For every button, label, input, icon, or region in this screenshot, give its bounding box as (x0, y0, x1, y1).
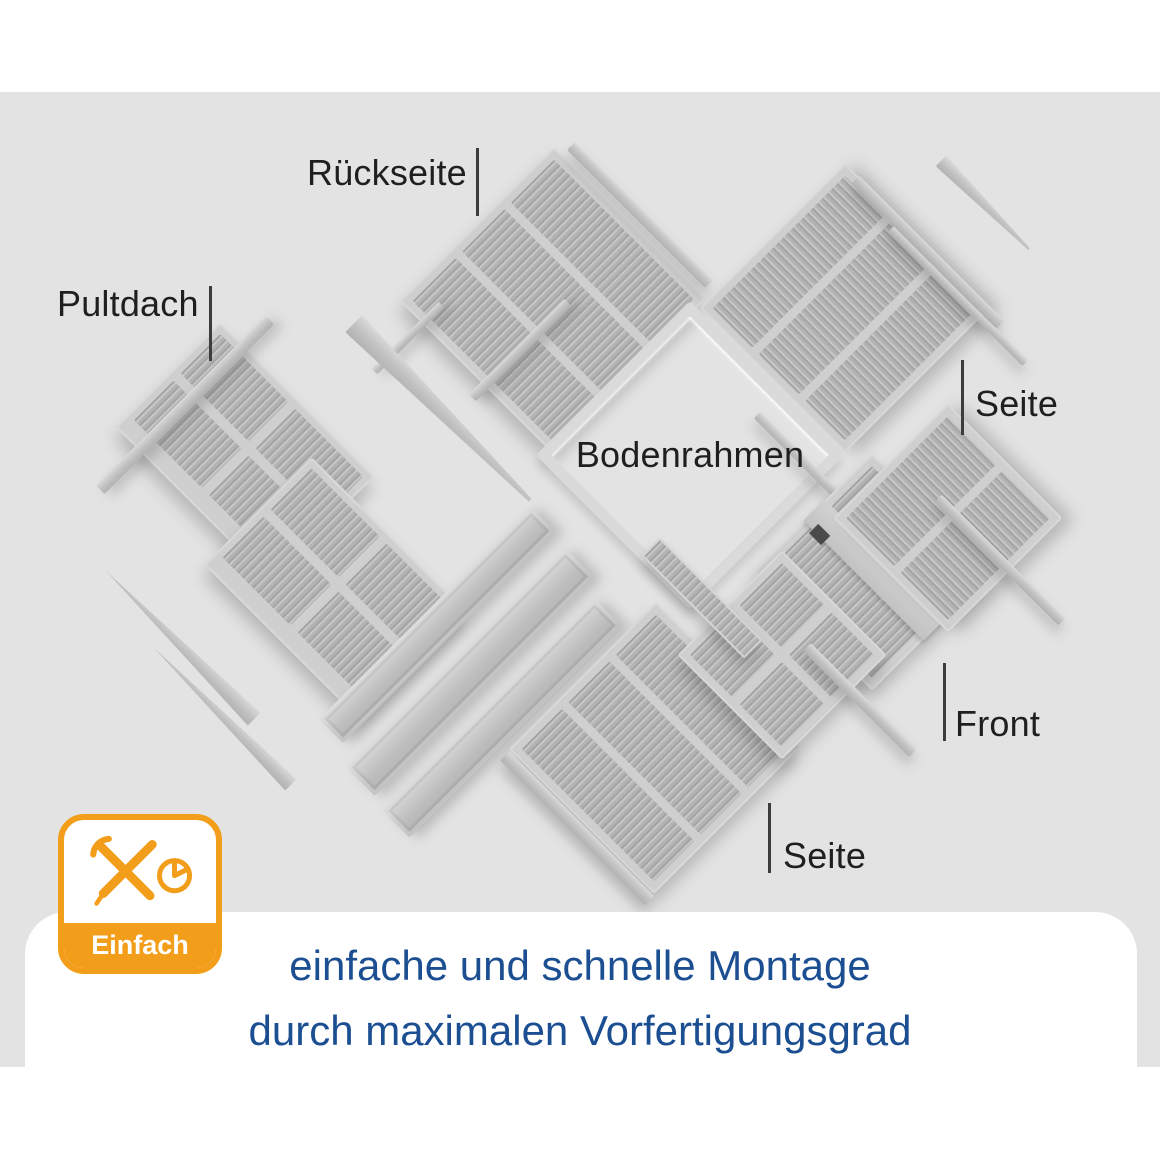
leader-front (943, 663, 946, 741)
label-pultdach: Pultdach (57, 283, 199, 325)
label-seite-right: Seite (975, 383, 1058, 425)
leader-seite-right (961, 360, 964, 435)
screwdriver-tip (97, 893, 104, 903)
wrench-screwdriver-clock-icon (84, 830, 196, 918)
leader-pultdach (209, 286, 212, 361)
label-seite-bottom: Seite (783, 835, 866, 877)
badge-label: Einfach (64, 923, 216, 968)
tools-icon (64, 820, 216, 923)
label-rueckseite: Rückseite (307, 152, 467, 194)
part-side-right-wedge (936, 156, 1035, 255)
caption-line-2: durch maximalen Vorfertigungsgrad (0, 998, 1160, 1063)
label-bodenrahmen: Bodenrahmen (576, 434, 804, 476)
leader-rueckseite (476, 148, 479, 216)
einfach-badge: Einfach (58, 814, 222, 974)
product-infographic: Rückseite Pultdach Bodenrahmen Seite Fro… (0, 0, 1160, 1160)
part-roof-wedge (147, 641, 296, 790)
leader-seite-bottom (768, 803, 771, 873)
label-front: Front (955, 703, 1040, 745)
